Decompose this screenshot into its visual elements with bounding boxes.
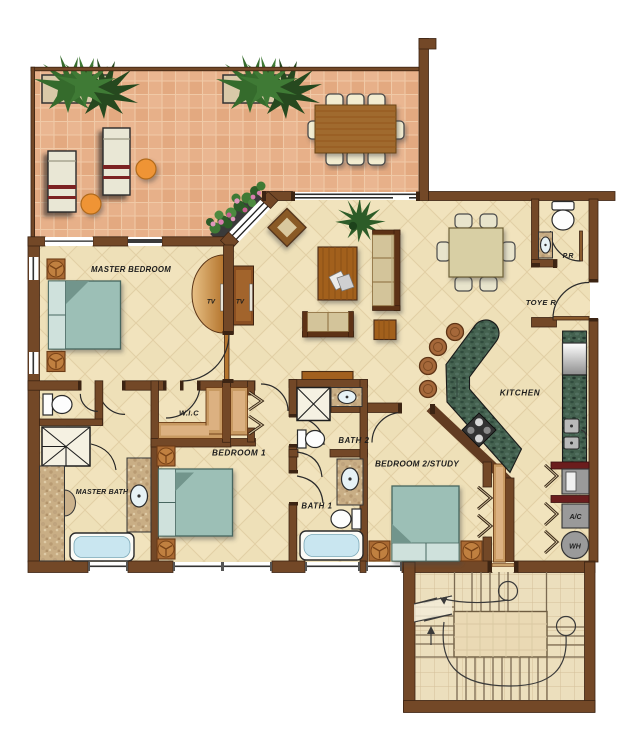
svg-text:TOYE R: TOYE R [526, 298, 557, 307]
svg-text:MASTER BEDROOM: MASTER BEDROOM [91, 265, 171, 274]
svg-text:BEDROOM 1: BEDROOM 1 [212, 449, 266, 458]
svg-text:WH: WH [569, 544, 582, 551]
svg-text:MASTER BATH: MASTER BATH [76, 489, 129, 496]
svg-text:A/C: A/C [568, 514, 582, 521]
svg-text:P.R: P.R [563, 253, 574, 260]
svg-text:BEDROOM 2/STUDY: BEDROOM 2/STUDY [375, 460, 460, 469]
svg-text:BATH 1: BATH 1 [301, 502, 332, 511]
svg-text:TV: TV [207, 299, 216, 306]
svg-text:TV: TV [236, 299, 245, 306]
svg-text:KITCHEN: KITCHEN [500, 389, 541, 398]
svg-text:W.I.C: W.I.C [179, 409, 199, 418]
svg-text:BATH 2: BATH 2 [338, 436, 369, 445]
